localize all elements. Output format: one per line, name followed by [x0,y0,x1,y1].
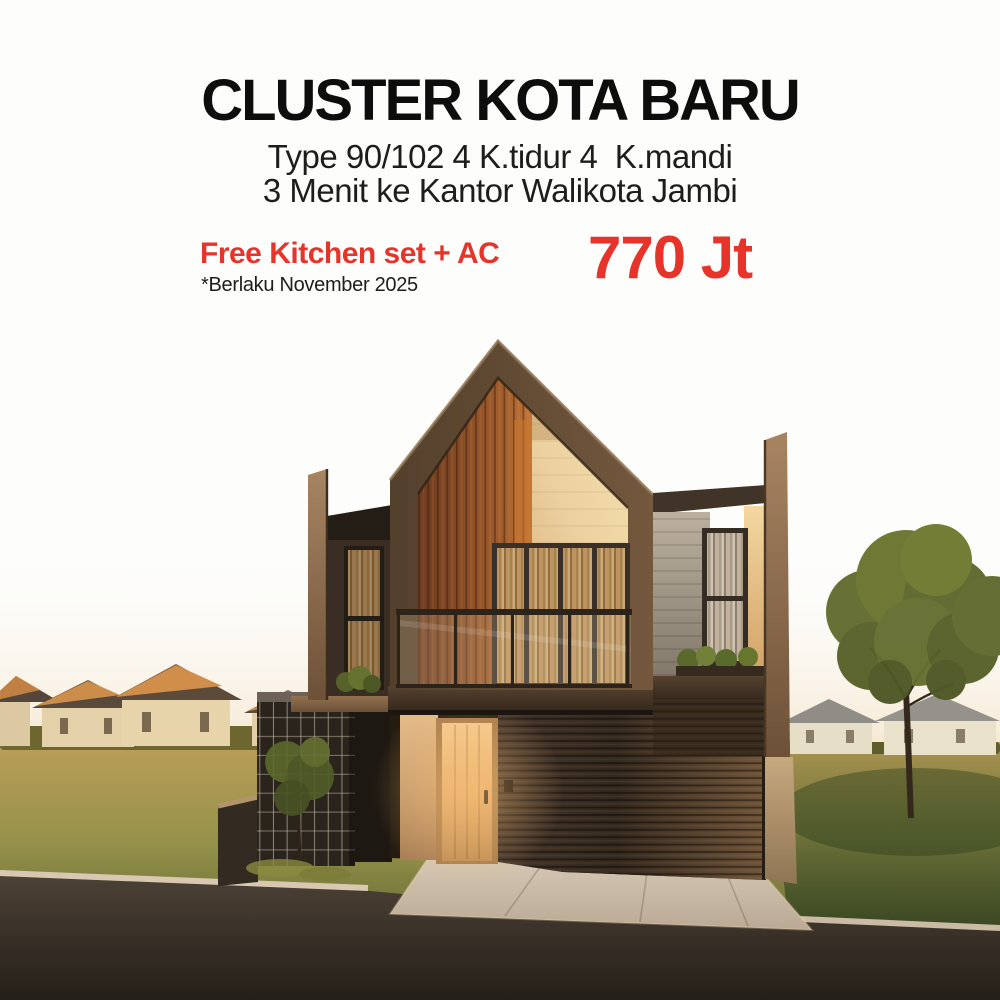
balcony-floor-band [388,686,654,715]
promo-note: *Berlaku November 2025 [201,274,418,297]
left-slab [291,696,392,712]
promo-text: Free Kitchen set + AC [200,237,499,271]
subtitle-location: 3 Menit ke Kantor Walikota Jambi [0,174,1000,207]
property-ad-poster: CLUSTER KOTA BARU Type 90/102 4 K.tidur … [0,0,1000,1000]
right-window [702,528,748,666]
gable-facade [390,341,653,690]
subtitle-spec: Type 90/102 4 K.tidur 4 K.mandi [0,140,1000,173]
headline: CLUSTER KOTA BARU [0,72,1000,130]
poster-text: CLUSTER KOTA BARU Type 90/102 4 K.tidur … [0,0,1000,340]
left-wing-roof [327,505,392,540]
house-render [291,341,797,885]
left-fin-wall [308,469,327,700]
balcony-railing [396,609,632,688]
price-text: 770 Jt [588,223,752,292]
right-boundary-wall [765,757,797,884]
right-wing [653,485,766,756]
